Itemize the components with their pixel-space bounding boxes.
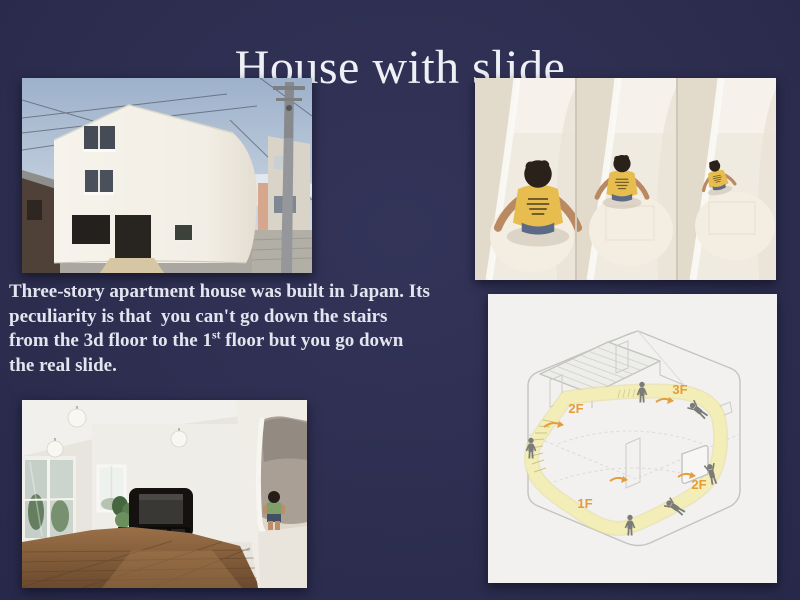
glass-doors [22,456,76,542]
diagram-label-2f-lower: 2F [691,477,706,492]
paragraph-line: Three-story apartment house was built in… [9,280,487,305]
diagram-label-1f: 1F [577,496,592,511]
diagram-label-3f: 3F [672,382,687,397]
body-paragraph: Three-story apartment house was built in… [9,280,487,378]
presentation-slide: House with slide [0,0,800,600]
paragraph-line: the real slide. [9,354,487,379]
paragraph-line: from the 3d floor to the 1st floor but y… [9,329,487,354]
ordinal-superscript: st [212,329,221,342]
paragraph-line: peculiarity is that you can't go down th… [9,305,487,330]
photo-living-room-interior [22,400,307,588]
interior-illustration [22,400,307,588]
diagram-label-2f-upper: 2F [568,401,583,416]
kids-sliding-illustration [475,78,776,280]
photo-kids-sliding-sequence [475,78,776,280]
photo-house-exterior [22,78,312,273]
isometric-diagram-illustration: 2F 3F 2F 1F [488,294,777,583]
house-exterior-illustration [22,78,312,273]
diagram-house-slide-isometric: 2F 3F 2F 1F [488,294,777,583]
